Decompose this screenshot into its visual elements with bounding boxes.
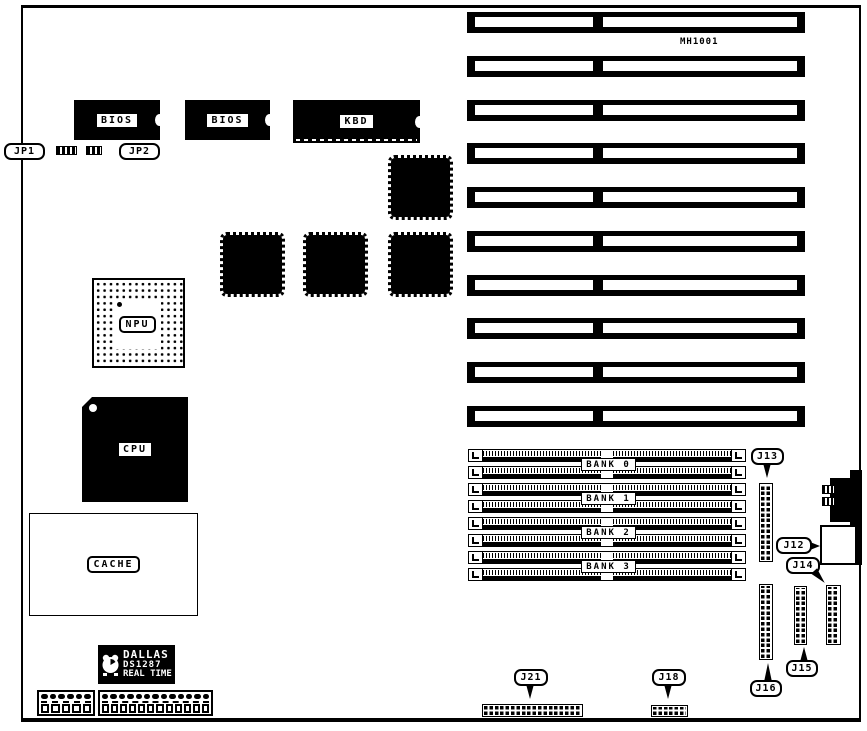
callout-j21: J21 <box>514 669 548 686</box>
terminal-pin <box>166 704 173 713</box>
isa-slot <box>467 100 805 121</box>
terminal-pin <box>102 704 109 713</box>
bios-chip-2-label: BIOS <box>206 113 248 128</box>
callout-j16: J16 <box>750 680 782 697</box>
terminal-pin <box>202 704 209 713</box>
simm-clip-left <box>469 518 483 529</box>
simm-clip-right <box>731 484 745 495</box>
pin-header-j18 <box>651 705 688 717</box>
cpu-label: CPU <box>118 442 152 457</box>
isa-slot-contact-right <box>603 236 797 246</box>
simm-clip-left <box>469 484 483 495</box>
bios-chip-2: BIOS <box>185 100 270 140</box>
terminal-pad-row <box>102 694 209 699</box>
isa-slot <box>467 56 805 77</box>
terminal-pin <box>129 704 136 713</box>
isa-slot-contact-right <box>603 367 797 377</box>
isa-slot-contact-right <box>603 192 797 202</box>
pin-header-j15 <box>794 586 807 645</box>
terminal-pin <box>147 704 154 713</box>
bios-chip-1-label: BIOS <box>96 113 138 128</box>
terminal-pin-row <box>41 704 91 713</box>
terminal-pin <box>175 704 182 713</box>
simm-clip-right <box>731 450 745 461</box>
qfp-chip-3 <box>303 232 368 297</box>
pin-header-j16 <box>759 584 773 660</box>
simm-clip-right <box>731 535 745 546</box>
isa-slot-contact-left <box>475 17 593 27</box>
terminal-pad <box>41 694 48 699</box>
isa-slot-contact-right <box>603 105 797 115</box>
terminal-pin <box>111 704 118 713</box>
isa-slot-contact-left <box>475 367 593 377</box>
isa-slot-contact-right <box>603 323 797 333</box>
callout-jp2: JP2 <box>119 143 160 160</box>
keyboard-connector-pin-block-2 <box>822 497 835 506</box>
callout-j13: J13 <box>751 448 784 465</box>
isa-slot-contact-left <box>475 323 593 333</box>
cache-area: CACHE <box>29 513 198 616</box>
rtc-type: REAL TIME <box>123 670 172 679</box>
power-connector-j12 <box>820 525 857 565</box>
chip-notch <box>265 114 274 126</box>
rtc-chip: DALLAS DS1287 REAL TIME <box>98 645 175 684</box>
chip-notch <box>415 116 424 128</box>
isa-slot-contact-right <box>603 148 797 158</box>
terminal-pad <box>186 694 192 699</box>
isa-slot-contact-right <box>603 280 797 290</box>
jumper-jp1-block <box>56 146 77 155</box>
isa-slot-contact-left <box>475 105 593 115</box>
simm-clip-right <box>731 501 745 512</box>
cpu-chip: CPU <box>82 397 188 502</box>
simm-clip-left <box>469 552 483 563</box>
isa-slot <box>467 275 805 296</box>
terminal-divider <box>41 701 91 703</box>
terminal-pad <box>161 694 167 699</box>
simm-clip-left <box>469 501 483 512</box>
keyboard-connector-step-top <box>850 470 862 479</box>
terminal-pad <box>136 694 142 699</box>
kbd-socket-dashes <box>296 139 417 141</box>
bios-chip-1: BIOS <box>74 100 160 140</box>
simm-clip-right <box>731 467 745 478</box>
qfp-chip-4 <box>388 232 453 297</box>
callout-j15: J15 <box>786 660 818 677</box>
isa-slot-contact-right <box>603 17 797 27</box>
keyboard-connector-pin-block-1 <box>822 485 835 494</box>
isa-slot <box>467 406 805 427</box>
terminal-divider <box>102 701 209 703</box>
terminal-pad <box>58 694 65 699</box>
qfp-chip-2 <box>220 232 285 297</box>
isa-slot-contact-right <box>603 61 797 71</box>
jumper-jp2-block <box>86 146 102 155</box>
terminal-pad <box>76 694 83 699</box>
terminal-pad <box>169 694 175 699</box>
qfp-chip-1 <box>388 155 453 220</box>
kbd-chip: KBD <box>293 100 420 143</box>
simm-clip-left <box>469 569 483 580</box>
isa-slot-contact-left <box>475 280 593 290</box>
terminal-strip-left <box>37 690 95 716</box>
terminal-pin <box>62 704 70 713</box>
isa-slot-contact-left <box>475 236 593 246</box>
terminal-strip-right <box>98 690 213 716</box>
memory-bank-label: BANK 3 <box>581 560 636 573</box>
simm-clip-right <box>731 518 745 529</box>
isa-slot <box>467 143 805 164</box>
memory-bank-label: BANK 0 <box>581 458 636 471</box>
kbd-chip-label: KBD <box>339 114 373 129</box>
isa-slot-contact-left <box>475 411 593 421</box>
terminal-pin-row <box>102 704 209 713</box>
terminal-pin <box>193 704 200 713</box>
pin-header-j14 <box>826 585 841 645</box>
board-model-label: MH1001 <box>680 37 719 47</box>
pin-header-j13 <box>759 483 773 562</box>
isa-slot <box>467 187 805 208</box>
terminal-pad <box>110 694 116 699</box>
simm-clip-right <box>731 569 745 580</box>
terminal-pad <box>50 694 57 699</box>
terminal-pad <box>102 694 108 699</box>
callout-jp1: JP1 <box>4 143 45 160</box>
terminal-pin <box>51 704 59 713</box>
npu-pin1-dot <box>117 302 122 307</box>
motherboard-diagram: MH1001 BIOS BIOS KBD JP1 JP2 NPU CPU <box>0 0 867 731</box>
callout-j14: J14 <box>786 557 820 574</box>
terminal-pad <box>119 694 125 699</box>
terminal-pin <box>83 704 91 713</box>
simm-clip-right <box>731 552 745 563</box>
terminal-pad <box>152 694 158 699</box>
npu-socket-center: NPU <box>114 299 161 349</box>
isa-slot-contact-left <box>475 61 593 71</box>
pin-header-j21 <box>482 704 583 717</box>
isa-slot-contact-left <box>475 148 593 158</box>
terminal-pad <box>84 694 91 699</box>
terminal-pin <box>41 704 49 713</box>
terminal-pin <box>120 704 127 713</box>
alarm-clock-icon <box>101 652 120 678</box>
cpu-pin1-dot <box>89 404 97 412</box>
isa-slot <box>467 231 805 252</box>
terminal-pin <box>156 704 163 713</box>
callout-j18: J18 <box>652 669 686 686</box>
terminal-pin <box>184 704 191 713</box>
terminal-pad <box>127 694 133 699</box>
terminal-pin <box>138 704 145 713</box>
isa-slot <box>467 318 805 339</box>
terminal-pad <box>203 694 209 699</box>
npu-socket: NPU <box>92 278 185 368</box>
simm-clip-left <box>469 535 483 546</box>
terminal-pin <box>72 704 80 713</box>
cache-label: CACHE <box>87 556 139 573</box>
terminal-pad <box>194 694 200 699</box>
isa-slot-contact-left <box>475 192 593 202</box>
isa-slot-contact-right <box>603 411 797 421</box>
isa-slot <box>467 362 805 383</box>
terminal-pad <box>67 694 74 699</box>
simm-clip-left <box>469 467 483 478</box>
terminal-pad <box>144 694 150 699</box>
terminal-pad <box>178 694 184 699</box>
memory-bank-label: BANK 2 <box>581 526 636 539</box>
npu-label: NPU <box>119 316 155 333</box>
terminal-pad-row <box>41 694 91 699</box>
isa-slot <box>467 12 805 33</box>
memory-bank-label: BANK 1 <box>581 492 636 505</box>
simm-clip-left <box>469 450 483 461</box>
callout-j12: J12 <box>776 537 812 554</box>
chip-notch <box>155 114 164 126</box>
